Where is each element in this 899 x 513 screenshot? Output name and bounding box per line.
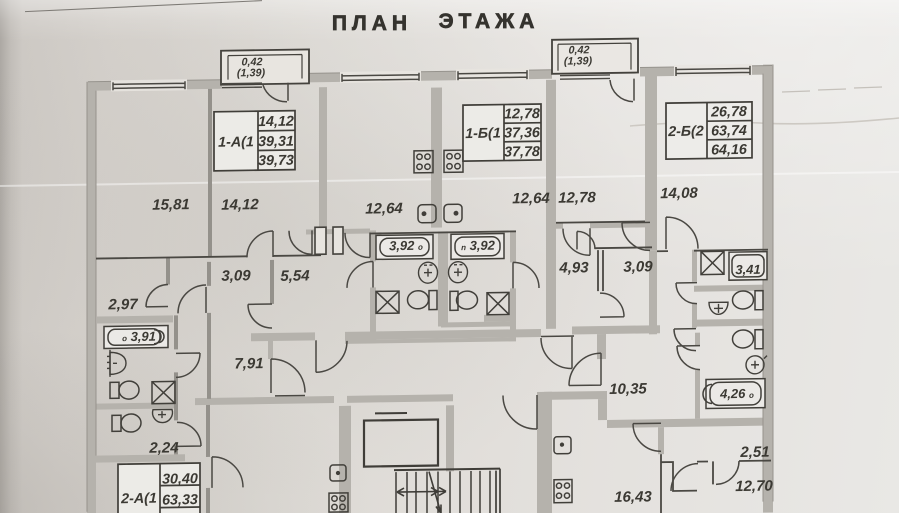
svg-text:(1,39): (1,39) — [237, 67, 266, 79]
svg-text:1-А(1: 1-А(1 — [218, 134, 254, 151]
svg-text:2,24: 2,24 — [148, 439, 179, 456]
svg-text:10,35: 10,35 — [609, 380, 647, 398]
svg-text:2,51: 2,51 — [739, 444, 769, 461]
svg-text:2-Б(2: 2-Б(2 — [667, 124, 704, 141]
svg-text:7,91: 7,91 — [234, 355, 263, 372]
svg-text:ПЛАН: ПЛАН — [332, 12, 412, 35]
svg-text:4,93: 4,93 — [558, 259, 589, 276]
svg-text:30,40: 30,40 — [162, 471, 198, 488]
svg-text:39,73: 39,73 — [258, 153, 294, 170]
svg-text:3,09: 3,09 — [221, 267, 251, 284]
svg-text:14,08: 14,08 — [660, 185, 698, 203]
svg-text:64,16: 64,16 — [711, 142, 748, 159]
svg-text:16,43: 16,43 — [614, 488, 652, 506]
svg-text:26,78: 26,78 — [710, 104, 747, 121]
svg-text:n 3,92: n 3,92 — [461, 238, 496, 254]
svg-text:3,09: 3,09 — [623, 258, 653, 275]
svg-text:3,92 o: 3,92 o — [389, 238, 423, 254]
svg-text:63,33: 63,33 — [162, 492, 198, 509]
svg-text:63,74: 63,74 — [711, 123, 747, 140]
svg-text:5,54: 5,54 — [280, 267, 310, 284]
svg-text:1-Б(1: 1-Б(1 — [465, 126, 501, 143]
svg-text:14,12: 14,12 — [258, 114, 294, 131]
svg-text:15,81: 15,81 — [152, 196, 190, 214]
svg-text:39,31: 39,31 — [258, 134, 294, 151]
svg-text:4,26 o: 4,26 o — [719, 386, 754, 402]
svg-text:37,36: 37,36 — [504, 125, 541, 142]
svg-text:2-А(1: 2-А(1 — [120, 491, 157, 508]
svg-text:3,41: 3,41 — [735, 262, 760, 277]
svg-text:12,78: 12,78 — [504, 106, 540, 123]
svg-text:37,78: 37,78 — [504, 144, 540, 161]
svg-text:12,78: 12,78 — [558, 189, 596, 207]
svg-text:ЭТАЖА: ЭТАЖА — [439, 10, 540, 33]
svg-text:12,64: 12,64 — [512, 190, 550, 208]
svg-text:o 3,91: o 3,91 — [122, 329, 156, 345]
svg-text:12,64: 12,64 — [365, 200, 403, 218]
svg-text:12,70: 12,70 — [735, 478, 773, 496]
svg-text:2,97: 2,97 — [107, 296, 138, 313]
svg-text:14,12: 14,12 — [221, 196, 259, 214]
svg-text:(1,39): (1,39) — [564, 55, 593, 67]
